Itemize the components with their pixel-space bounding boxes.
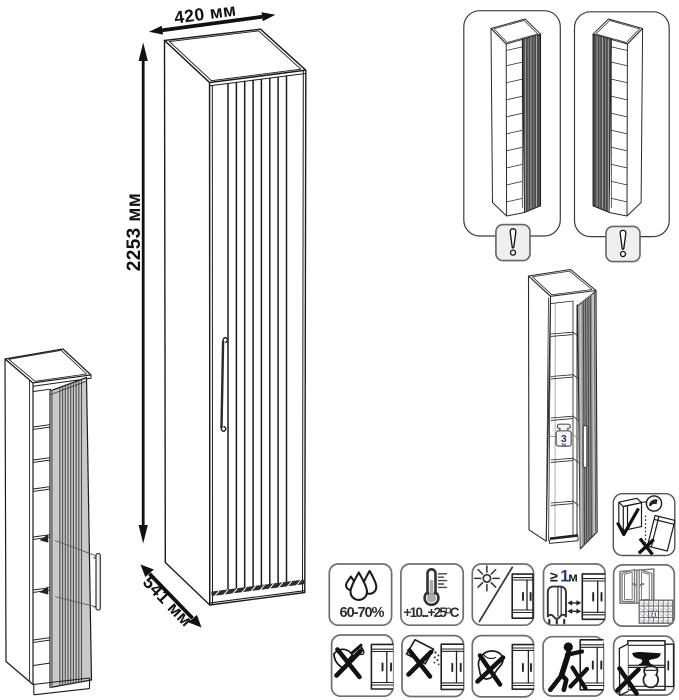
svg-text:21: 21 xyxy=(650,613,657,619)
svg-text:≥: ≥ xyxy=(550,570,558,586)
svg-text:м: м xyxy=(568,570,578,585)
svg-text:2253 мм: 2253 мм xyxy=(124,193,145,271)
svg-text:+10...+25OC: +10...+25OC xyxy=(404,605,460,620)
svg-text:kg: kg xyxy=(562,443,566,447)
svg-text:60-70%: 60-70% xyxy=(340,605,385,621)
